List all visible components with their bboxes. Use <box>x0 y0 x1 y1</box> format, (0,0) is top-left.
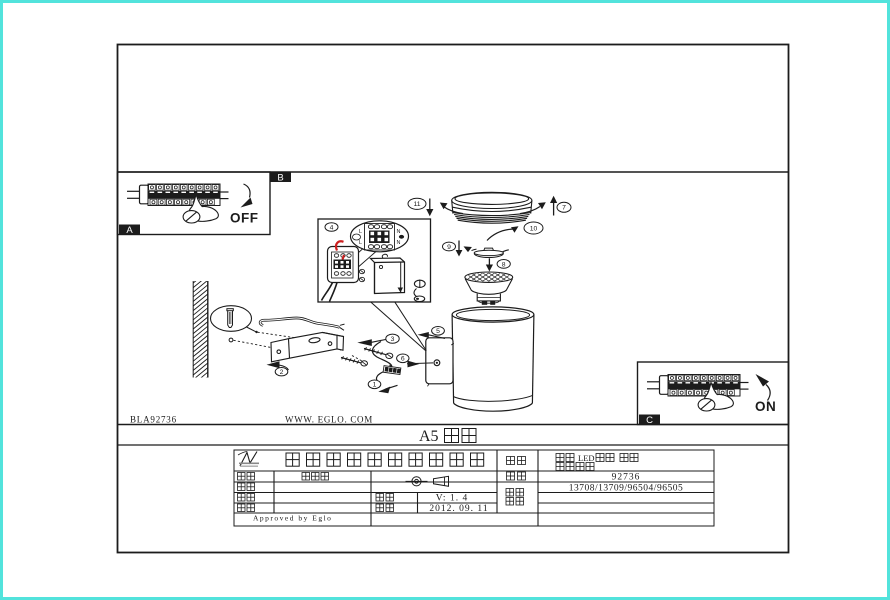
svg-text:N: N <box>397 229 401 235</box>
svg-text:3: 3 <box>391 336 395 343</box>
svg-text:L: L <box>359 240 362 246</box>
svg-text:5: 5 <box>436 328 440 335</box>
svg-text:92736: 92736 <box>612 473 641 483</box>
svg-text:10: 10 <box>530 225 538 232</box>
svg-text:LED: LED <box>578 453 595 463</box>
svg-text:1: 1 <box>373 382 377 389</box>
svg-text:6: 6 <box>401 356 405 363</box>
svg-text:13708/13709/96504/96505: 13708/13709/96504/96505 <box>569 484 683 494</box>
svg-text:A5: A5 <box>419 428 439 445</box>
svg-text:B: B <box>277 173 283 184</box>
svg-text:7: 7 <box>562 205 566 212</box>
svg-text:4: 4 <box>330 224 334 231</box>
svg-text:8: 8 <box>502 261 506 268</box>
svg-text:9: 9 <box>447 244 451 251</box>
svg-text:OFF: OFF <box>230 211 259 226</box>
svg-text:L: L <box>359 229 362 235</box>
svg-text:Approved by Eglo: Approved by Eglo <box>253 514 332 523</box>
svg-text:A: A <box>126 225 133 236</box>
svg-text:N: N <box>397 240 401 246</box>
svg-text:BLA92736: BLA92736 <box>130 415 177 425</box>
svg-text:V: 1. 4: V: 1. 4 <box>436 494 468 504</box>
svg-text:11: 11 <box>413 201 420 208</box>
svg-text:C: C <box>646 415 653 426</box>
svg-text:2: 2 <box>280 369 284 376</box>
svg-text:WWW. EGLO. COM: WWW. EGLO. COM <box>285 415 373 425</box>
svg-text:2012. 09. 11: 2012. 09. 11 <box>429 504 488 514</box>
svg-text:ON: ON <box>755 399 776 414</box>
